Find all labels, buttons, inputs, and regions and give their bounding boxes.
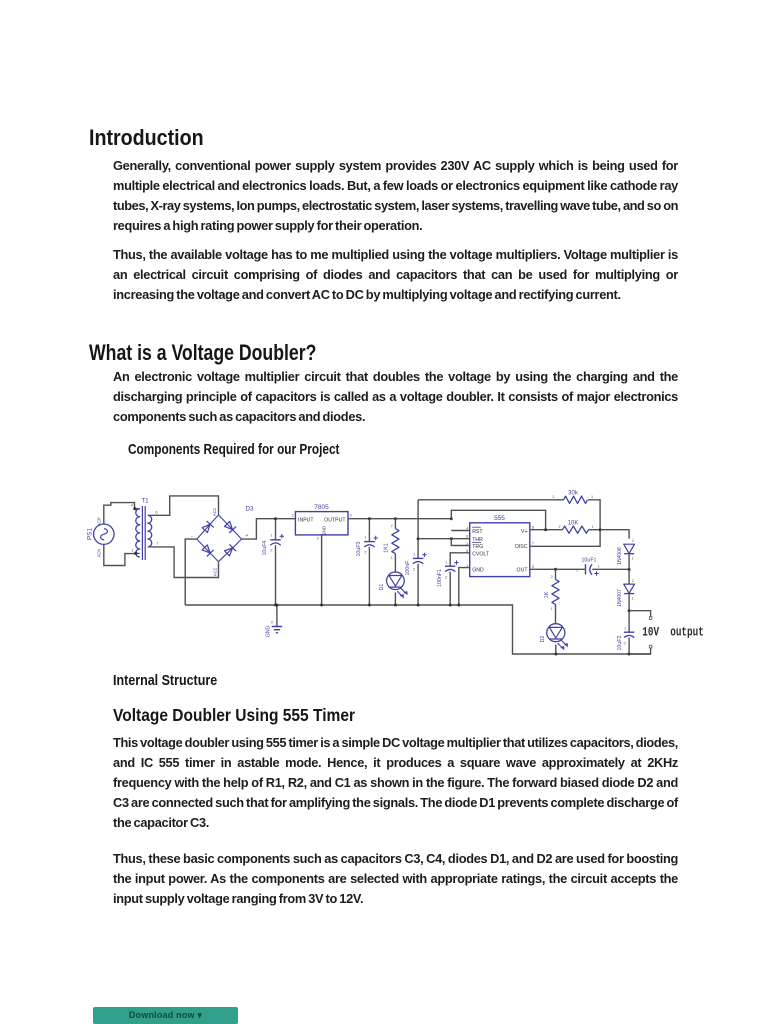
svg-text:1: 1 [391,556,393,560]
svg-text:RST: RST [472,529,483,535]
svg-text:2: 2 [552,495,554,499]
svg-text:D2: D2 [540,636,546,643]
svg-text:6: 6 [466,534,469,539]
svg-text:ACN: ACN [97,549,102,558]
svg-text:0: 0 [271,621,273,625]
svg-text:1: 1 [270,534,272,538]
svg-text:1: 1 [364,536,366,540]
svg-text:INPUT: INPUT [298,517,314,523]
svg-text:2: 2 [632,579,634,583]
svg-text:3: 3 [532,564,535,569]
svg-text:TRG: TRG [472,544,483,550]
svg-text:THR: THR [472,537,483,543]
svg-text:10uF3: 10uF3 [356,541,362,556]
svg-text:2: 2 [558,525,560,529]
svg-text:PS1: PS1 [87,528,94,540]
svg-text:2: 2 [270,549,272,553]
svg-text:10uF1: 10uF1 [581,558,596,564]
svg-text:+: + [246,533,249,539]
svg-text:D1: D1 [379,584,385,591]
svg-text:1K: 1K [544,591,550,598]
svg-text:100nF1: 100nF1 [437,569,443,587]
svg-text:7: 7 [156,541,159,546]
svg-text:GND: GND [322,526,327,536]
svg-text:D3: D3 [246,506,255,513]
svg-text:8: 8 [532,525,535,530]
svg-text:2: 2 [576,569,578,573]
svg-text:2: 2 [317,536,320,541]
svg-text:2: 2 [445,576,447,580]
svg-text:4: 4 [466,526,469,531]
svg-text:1N4008: 1N4008 [617,547,623,565]
svg-text:1: 1 [591,495,593,499]
svg-text:V+: V+ [521,529,528,535]
svg-text:1: 1 [624,627,626,631]
svg-text:10uF2: 10uF2 [617,635,623,650]
svg-text:CVOLT: CVOLT [472,552,490,558]
svg-text:1: 1 [632,597,634,601]
svg-text:2: 2 [624,642,626,646]
svg-text:30k: 30k [568,491,579,497]
svg-text:100nF: 100nF [405,560,411,576]
svg-text:1: 1 [445,561,447,565]
svg-text:1: 1 [131,548,134,553]
svg-text:ACP: ACP [97,517,102,526]
svg-text:10uF4: 10uF4 [262,540,268,555]
svg-text:1: 1 [292,513,295,518]
svg-text:OUT: OUT [517,568,529,574]
svg-text:555: 555 [494,515,505,522]
svg-text:GND: GND [472,568,484,574]
svg-text:1N4007: 1N4007 [617,589,623,607]
svg-text:1: 1 [413,553,415,557]
svg-text:10K: 10K [568,521,579,527]
svg-text:3: 3 [350,513,353,518]
svg-text:2: 2 [551,575,553,579]
svg-text:10V output: 10V output [642,624,704,639]
svg-text:1: 1 [598,565,600,569]
svg-text:6: 6 [155,510,158,515]
svg-text:1: 1 [592,525,594,529]
svg-text:GND: GND [266,625,272,637]
svg-text:1: 1 [551,607,553,611]
svg-text:1K1: 1K1 [384,543,390,552]
svg-text:2: 2 [391,524,393,528]
svg-text:OUTPUT: OUTPUT [324,517,346,523]
svg-text:2: 2 [632,539,634,543]
svg-text:7: 7 [532,541,535,546]
svg-text:T1: T1 [141,498,149,505]
svg-text:DISC: DISC [515,544,528,550]
svg-text:AC1: AC1 [212,507,217,516]
svg-text:7805: 7805 [314,504,329,511]
svg-text:AC2: AC2 [213,567,218,576]
svg-text:2: 2 [413,568,415,572]
svg-text:2: 2 [364,551,366,555]
svg-text:1: 1 [632,557,634,561]
